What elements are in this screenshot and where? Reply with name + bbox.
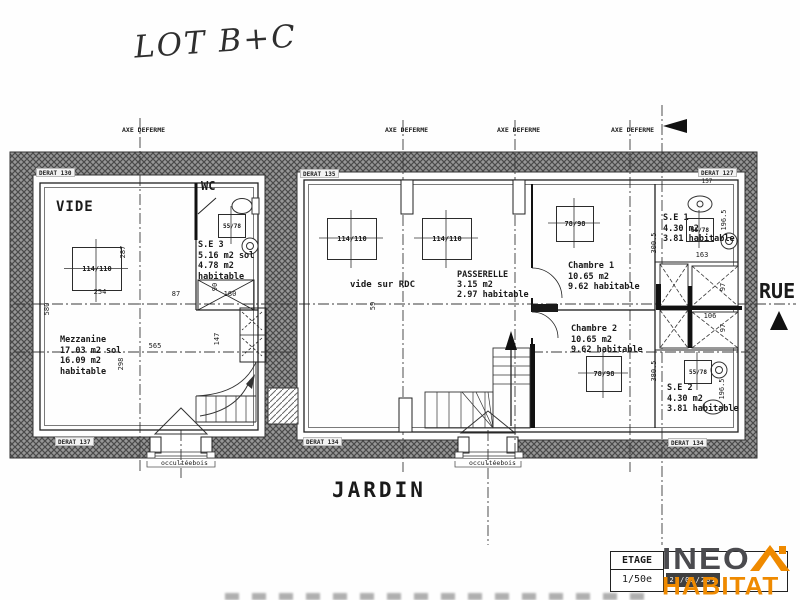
room-label-se3: S.E 35.16 m2 sol4.78 m2habitable	[198, 240, 254, 282]
dimension-196-5: 196.5	[717, 374, 727, 404]
wall-tag-derat-134: DERAT 134	[303, 437, 342, 446]
scanned-floorplan-page: LOT B+C AXE DEFERME AXE DEFERME AXE DEFE…	[0, 0, 800, 600]
window-note-occultee-bois: occultéebois	[161, 460, 208, 468]
dimension-196-5: 196.5	[719, 205, 729, 235]
window-marker-55-78: 55/78	[686, 218, 714, 242]
logo-text-habitat: HABITAT	[662, 572, 779, 600]
room-label-vide-sur-rdc: vide sur RDC	[350, 280, 415, 290]
axe-de-ferme-label: AXE DEFERME	[122, 127, 165, 135]
jardin-label: JARDIN	[332, 478, 426, 502]
room-label-chambre2: Chambre 210.65 m29.62 habitable	[571, 324, 643, 356]
room-label-mezzanine: Mezzanine17.03 m2 sol16.09 m2habitable	[60, 335, 121, 377]
dimension-300-5: 300.5	[649, 228, 659, 258]
dimension-254: 254	[85, 287, 115, 297]
ineo-habitat-logo: INEO HABITAT	[660, 539, 800, 600]
rue-arrow-icon	[770, 311, 788, 330]
left-block-stair	[196, 362, 256, 422]
wall-tag-derat-130: DERAT 130	[36, 168, 75, 177]
dimension-580: 580	[42, 294, 52, 324]
title-block-left: ETAGE 1/50e	[611, 552, 664, 591]
axe-de-ferme-label: AXE DEFERME	[497, 127, 540, 135]
dimension-97: 97	[718, 272, 728, 302]
window-note-occultee-bois: occultéebois	[469, 460, 516, 468]
wall-tag-derat-135: DERAT 135	[300, 169, 339, 178]
shaft-boxes	[656, 264, 742, 348]
room-label-vide: VIDE	[56, 199, 94, 215]
room-label-se2: S.E 24.30 m23.81 habitable	[667, 383, 739, 415]
window-marker-114-110: 114/110	[327, 218, 377, 260]
window-marker-55-78: 55/78	[218, 214, 246, 238]
room-label-passerelle: PASSERELLE3.15 m22.97 habitable	[457, 270, 529, 300]
floorplan-drawing	[0, 0, 800, 600]
window-marker-78-98: 78/98	[556, 206, 594, 242]
dimension-180: 180	[215, 289, 245, 299]
main-stair	[425, 331, 535, 428]
axe-de-ferme-label: AXE DEFERME	[385, 127, 428, 135]
level-name: ETAGE	[611, 552, 663, 570]
rue-label: RUE	[759, 279, 795, 303]
dimension-565: 565	[140, 341, 170, 351]
dimension-380-5: 380.5	[649, 356, 659, 386]
scale-value: 1/50e	[611, 570, 663, 590]
window-marker-55-78: 55/78	[684, 360, 712, 384]
dimension-287: 287	[118, 237, 128, 267]
window-marker-78-98: 78/98	[586, 356, 622, 392]
dimension-163: 163	[687, 250, 717, 260]
room-label-wc: WC	[201, 179, 215, 193]
dimension-97: 97	[718, 313, 728, 343]
wall-tag-derat-134: DERAT 134	[668, 438, 707, 447]
wall-tag-derat-137: DERAT 137	[55, 437, 94, 446]
axe-de-ferme-label: AXE DEFERME	[611, 127, 654, 135]
window-marker-114-110: 114/110	[422, 218, 472, 260]
axis-arrow-icon	[663, 119, 687, 133]
room-label-chambre1: Chambre 110.65 m29.62 habitable	[568, 261, 640, 293]
dimension-298: 298	[116, 349, 126, 379]
dimension-147: 147	[212, 324, 222, 354]
window-marker-114-110: 114/110	[72, 247, 122, 291]
dimension-59: 59	[368, 291, 378, 321]
dimension-87: 87	[161, 289, 191, 299]
wall-tag-derat-127: DERAT 127	[698, 168, 737, 177]
dimension-157: 157	[692, 177, 722, 187]
scan-artifact	[225, 593, 655, 600]
